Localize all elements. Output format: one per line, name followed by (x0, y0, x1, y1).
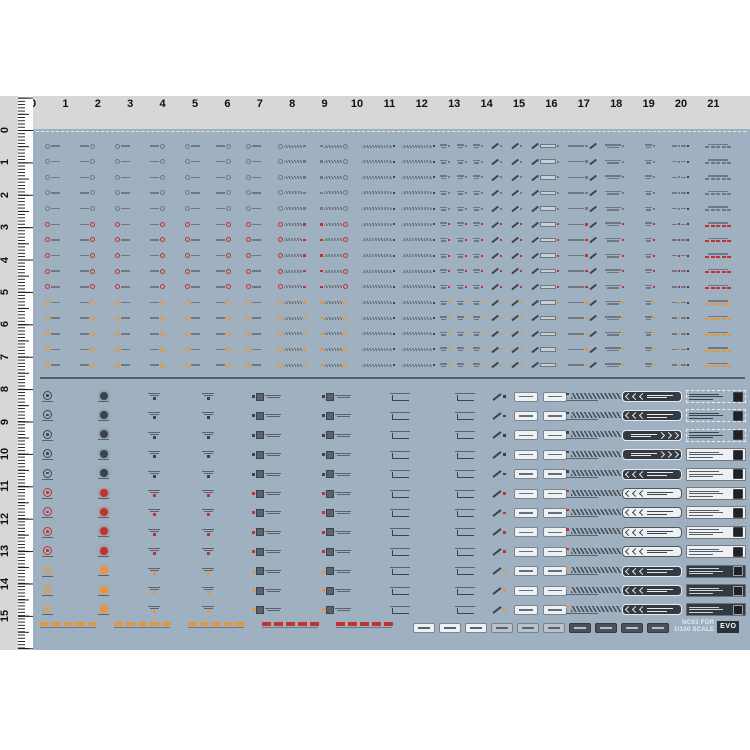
ruler-number: 9 (315, 98, 335, 110)
mini-dash (716, 209, 720, 211)
text-line (540, 144, 556, 149)
text-line (191, 177, 200, 179)
text-line (496, 627, 508, 629)
circle-marker (115, 237, 120, 242)
text-line (646, 193, 651, 195)
marker-dot (465, 145, 467, 147)
mini-dash (727, 193, 731, 195)
decal-cell (511, 140, 522, 152)
decal-cell (216, 312, 231, 324)
bracket-line (392, 569, 409, 575)
mini-dash (727, 178, 731, 180)
ruler-number: 5 (0, 284, 15, 300)
marker-dot (585, 286, 588, 289)
marker-dot (433, 317, 435, 319)
chevron-glyph (639, 509, 646, 516)
circle-marker (278, 206, 283, 211)
micro-label (440, 269, 447, 273)
mini-dash (727, 256, 731, 258)
warning-dash (224, 622, 233, 626)
scale-text: NC03 FOR 1/100 SCALE (674, 620, 714, 633)
decal-cell (115, 156, 130, 168)
hatched-code-bar (566, 451, 621, 459)
decal-cell (440, 156, 450, 168)
text-line (607, 256, 619, 258)
marker-dot (622, 302, 624, 304)
mini-dash (716, 162, 720, 164)
decal-cell (148, 543, 160, 560)
text-line (607, 193, 619, 195)
decal-cell (202, 388, 214, 405)
text-line (204, 531, 213, 532)
circle-marker (278, 237, 283, 242)
decal-cell (402, 328, 435, 340)
bracket-label (455, 606, 475, 614)
decal-cell (491, 234, 502, 246)
circle-marker (343, 237, 348, 242)
stripe-bar (284, 238, 302, 241)
decal-cell (362, 156, 395, 168)
decal-cell (150, 156, 165, 168)
marker-dot (622, 286, 624, 288)
circle-marker (278, 159, 283, 164)
decal-cell (605, 312, 624, 324)
text-line (473, 191, 480, 193)
bracket-line (457, 395, 474, 401)
plate-caption (335, 550, 351, 553)
text-line (441, 240, 446, 242)
marker-dot (207, 416, 210, 419)
hatched-code-bar (566, 509, 621, 517)
text-line (681, 255, 686, 257)
text-line (457, 269, 464, 271)
decal-cell (440, 234, 450, 246)
circle-marker (246, 159, 251, 164)
bottom-decal-row (33, 427, 750, 444)
marker-dot (320, 348, 323, 351)
text-line (265, 608, 281, 609)
text-line (80, 224, 89, 226)
marker-dot (153, 416, 156, 419)
decal-cell (440, 250, 450, 262)
text-line (646, 147, 651, 149)
text-line (519, 435, 533, 437)
text-line (51, 224, 60, 226)
stacked-label (605, 347, 621, 351)
decal-cell (45, 140, 60, 152)
mini-dash (722, 256, 726, 258)
marker-dot (500, 239, 502, 241)
stripe-bar (324, 254, 342, 257)
decal-cell (457, 171, 467, 183)
text-line (457, 207, 464, 209)
text-line (473, 207, 480, 209)
text-line (80, 208, 89, 210)
text-line (418, 627, 430, 629)
text-line (191, 192, 200, 194)
micro-label (440, 363, 447, 367)
diagonal-arrow (511, 174, 518, 180)
warning-dash-segment (114, 622, 171, 628)
marker-dot (320, 145, 323, 148)
decal-cell (605, 234, 624, 246)
mini-dash (727, 350, 731, 352)
marker-dot (465, 333, 467, 335)
circle-marker (278, 363, 283, 368)
circle-marker (45, 300, 50, 305)
marker-dot (500, 333, 502, 335)
text-line (216, 364, 225, 366)
marker-dot (320, 239, 323, 242)
text-line (689, 612, 713, 613)
marker-dot (557, 364, 559, 366)
text-line (265, 492, 281, 493)
circle-marker (246, 363, 251, 368)
text-line (474, 240, 479, 242)
diagonal-arrow (491, 331, 498, 337)
micro-label (440, 191, 447, 195)
text-line (645, 269, 652, 271)
text-line (98, 420, 109, 421)
decal-cell (605, 328, 624, 340)
marker-dot (393, 364, 395, 366)
marker-dot (322, 531, 325, 534)
text-line (121, 255, 130, 257)
decal-cell (115, 312, 130, 324)
text-line (98, 556, 109, 557)
product-code: NC03 FOR (674, 620, 714, 626)
text-line (265, 434, 281, 435)
chevron-glyph (639, 529, 646, 536)
text-line (216, 286, 225, 288)
text-line (605, 144, 621, 146)
text-line (150, 270, 159, 272)
decal-cell (440, 203, 450, 215)
mini-dash (705, 334, 709, 336)
plate-text (647, 589, 673, 593)
roundel-outline (42, 469, 53, 480)
marker-dot (520, 145, 522, 147)
bracket-label (455, 528, 475, 536)
circle-marker (226, 206, 231, 211)
marker-dot (687, 192, 689, 194)
marker-dot (433, 302, 435, 304)
decal-cell (362, 359, 395, 371)
decal-cell (80, 171, 95, 183)
ruler-number: 7 (0, 349, 15, 365)
marker-dot (622, 317, 624, 319)
bracket-label (455, 431, 475, 439)
hatch-wrap (566, 548, 621, 554)
mini-dash (705, 240, 709, 242)
text-line (455, 470, 475, 471)
marker-dot (503, 415, 506, 418)
diagonal-arrow (589, 252, 596, 258)
stacked-label (605, 254, 621, 258)
decal-cell (185, 187, 200, 199)
decal-cell (672, 359, 689, 371)
hatch-bar (571, 528, 621, 534)
text-line (216, 145, 225, 147)
text-line (150, 177, 159, 179)
mini-dash (716, 240, 720, 242)
text-line (607, 287, 619, 289)
text-line (148, 606, 160, 607)
text-line (337, 455, 350, 456)
marker-dot (303, 270, 306, 273)
circle-marker (160, 316, 165, 321)
strip-chip (465, 623, 487, 633)
marker-dot (322, 550, 325, 553)
decal-cell (645, 328, 655, 340)
circle-marker (226, 159, 231, 164)
text-line (647, 531, 673, 532)
plate-caption (335, 608, 351, 611)
circle-marker (185, 175, 190, 180)
bracket-label (455, 587, 475, 595)
stripe-bar (284, 285, 302, 288)
marker-dot (303, 333, 306, 336)
decal-cell (185, 281, 200, 293)
text-line (519, 570, 533, 572)
marker-dot (687, 286, 689, 288)
marker-dot (252, 453, 255, 456)
stripe-bar (324, 207, 342, 210)
square-plate (256, 567, 264, 575)
chevron-glyph (658, 432, 665, 439)
circle-marker (90, 253, 95, 258)
text-line (80, 192, 89, 194)
hatched-bar (362, 301, 392, 304)
decal-cell (115, 328, 130, 340)
diagonal-arrow (531, 284, 538, 290)
circle-marker (160, 175, 165, 180)
decal-cell (216, 265, 231, 277)
roundel-outline (42, 430, 53, 441)
mini-dash-row (705, 287, 731, 289)
marker-dot (566, 412, 569, 415)
circle-marker (160, 284, 165, 289)
marker-dot (433, 348, 435, 350)
micro-label (473, 269, 480, 273)
marker-dot (393, 333, 395, 335)
decal-cell (605, 343, 624, 355)
marker-dot (481, 255, 483, 257)
roundel-ring (43, 566, 52, 575)
decal-cell (98, 485, 109, 502)
text-line (98, 575, 109, 576)
bracket-line (392, 395, 409, 401)
decal-cell (705, 265, 731, 277)
text-line (540, 347, 556, 352)
marker-dot (303, 286, 306, 289)
decal-cell (605, 359, 624, 371)
marker-dot (678, 286, 680, 288)
marker-dot (303, 145, 306, 148)
decal-cell (605, 156, 624, 168)
text-line (607, 350, 619, 352)
mini-dash (722, 225, 726, 227)
label-chip (543, 527, 567, 537)
decal-cell (622, 466, 682, 483)
circle-marker (160, 159, 165, 164)
decal-cell (568, 312, 597, 324)
decal-cell (705, 203, 731, 215)
marker-dot (503, 473, 506, 476)
decal-cell (148, 563, 160, 580)
mini-dash (722, 318, 726, 320)
decal-cell (705, 328, 731, 340)
mini-dash (711, 271, 715, 273)
mini-dash (727, 318, 731, 320)
text-line (519, 609, 533, 611)
decal-cell (492, 601, 506, 618)
stripe-bar (324, 332, 342, 335)
decal-cell (672, 234, 689, 246)
marker-dot (433, 176, 435, 178)
square-plate (326, 606, 334, 614)
text-line (457, 238, 464, 240)
roundel-filled (98, 566, 109, 576)
text-line (390, 567, 410, 568)
diagonal-arrow (531, 159, 538, 165)
text-line (645, 285, 652, 287)
marker-dot (653, 364, 655, 366)
bracket-label (455, 412, 475, 420)
decal-cell (622, 543, 682, 560)
decal-cell (566, 388, 621, 405)
mini-dash (716, 178, 720, 180)
warning-dash (298, 622, 307, 626)
diagonal-arrow (492, 451, 501, 459)
decal-cell (98, 427, 109, 444)
text-line (681, 161, 686, 163)
marker-dot (520, 348, 522, 350)
decal-cell (202, 446, 214, 463)
marker-dot (433, 208, 435, 210)
text-line (689, 551, 723, 552)
circle-marker (343, 331, 348, 336)
bracket-line (457, 530, 474, 536)
decal-cell (455, 563, 475, 580)
text-line (519, 415, 533, 417)
stripe-bar (284, 270, 302, 273)
mini-dash (716, 287, 720, 289)
diagonal-arrow (511, 362, 518, 368)
square-plate (326, 451, 334, 459)
circle-marker (115, 300, 120, 305)
bracket-label (390, 509, 410, 517)
text-line (474, 350, 479, 352)
square-plate (326, 412, 334, 420)
decal-cell (568, 250, 597, 262)
plate-caption (265, 550, 281, 553)
decal-cell (705, 250, 731, 262)
top-decal-row (33, 171, 750, 185)
decal-cell (42, 543, 53, 560)
decal-cell (511, 265, 522, 277)
text-line (150, 333, 159, 335)
mini-dash (727, 240, 731, 242)
text-line (519, 473, 533, 475)
placard-emblem (733, 489, 743, 499)
marker-dot (207, 533, 210, 536)
circle-marker (45, 190, 50, 195)
decal-cell (622, 504, 682, 521)
text-line (605, 347, 621, 349)
decal-cell (320, 343, 348, 355)
placard-emblem (733, 547, 743, 557)
decal-cell (246, 359, 261, 371)
text-line (440, 191, 447, 193)
marker-dot (687, 317, 689, 319)
roundel-filled (98, 527, 109, 537)
roundel-outline (42, 488, 53, 499)
text-line (441, 256, 446, 258)
decal-cell (216, 281, 231, 293)
decal-cell (148, 427, 160, 444)
text-line (51, 239, 60, 241)
decal-cell (531, 171, 559, 183)
decal-cell (185, 297, 200, 309)
micro-label (473, 316, 480, 320)
decal-cell (402, 312, 435, 324)
marker-dot (448, 145, 450, 147)
decal-cell (390, 543, 410, 560)
top-decal-row (33, 140, 750, 154)
text-line (455, 490, 475, 491)
text-line (42, 498, 53, 499)
chevron-glyph (639, 412, 646, 419)
text-line (672, 161, 677, 163)
diagonal-arrow (589, 190, 596, 196)
text-line (473, 285, 480, 287)
chevron-plate (622, 410, 682, 421)
decal-cell (543, 504, 567, 521)
diagonal-arrow (492, 509, 501, 517)
decal-cell (705, 297, 731, 309)
mini-dash-row (705, 146, 731, 148)
text-line (646, 178, 651, 180)
bracket-label (455, 451, 475, 459)
label-chip (514, 508, 538, 518)
marker-dot (448, 317, 450, 319)
text-line (51, 161, 60, 163)
label-chip (514, 527, 538, 537)
marker-dot (520, 239, 522, 241)
decal-cell (672, 297, 689, 309)
decal-cell (150, 187, 165, 199)
marker-dot (566, 548, 569, 551)
decal-cell (492, 466, 506, 483)
text-line (568, 333, 584, 335)
text-line (455, 431, 475, 432)
micro-label (457, 207, 464, 211)
roundel-filled (98, 411, 109, 421)
hatched-bar (402, 145, 432, 148)
circle-marker (246, 284, 251, 289)
placard-text (689, 607, 723, 613)
strip-chip (543, 623, 565, 633)
top-decal-row (33, 359, 750, 373)
circle-marker (246, 222, 251, 227)
marker-dot (153, 552, 156, 555)
warning-dash (212, 622, 221, 626)
plate-caption (265, 589, 281, 592)
hatched-bar (362, 145, 392, 148)
text-line (267, 494, 280, 495)
decal-cell (80, 156, 95, 168)
